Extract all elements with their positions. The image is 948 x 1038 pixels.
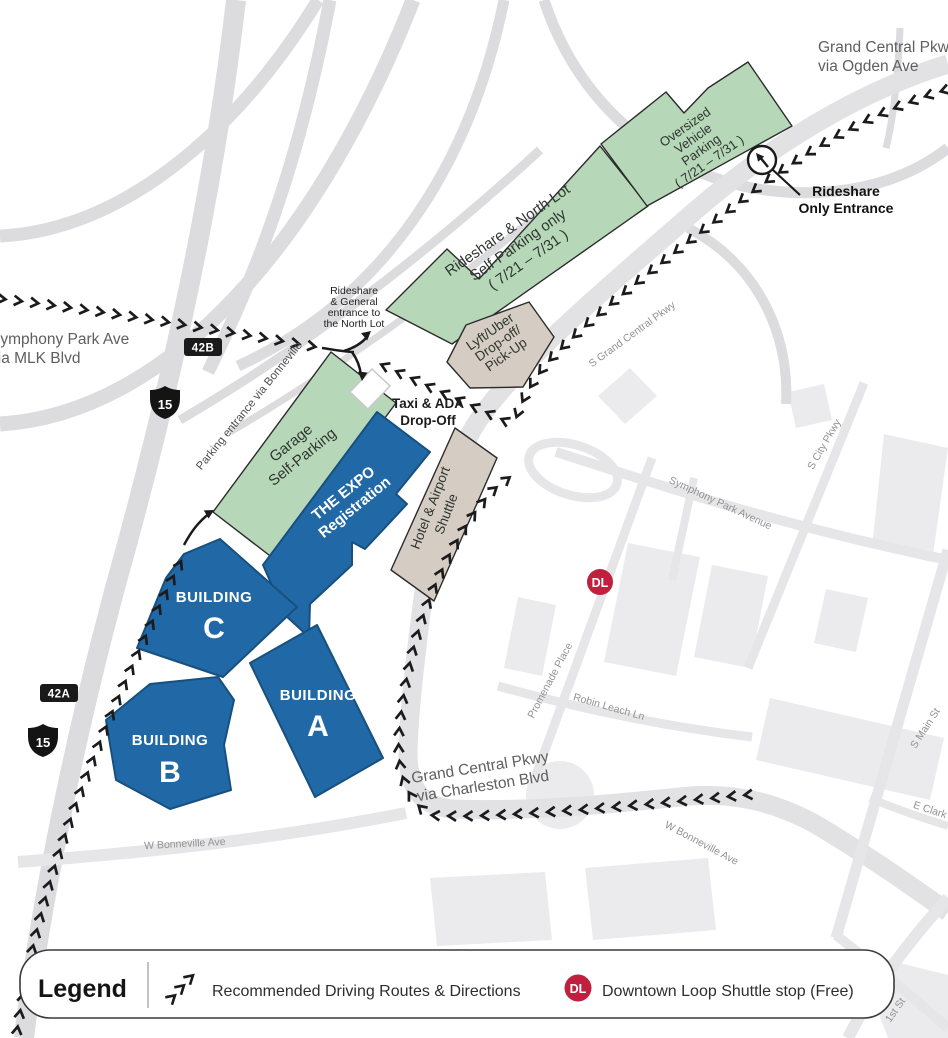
svg-text:Grand Central Pkwy: Grand Central Pkwy: [818, 39, 948, 56]
venue-driving-map: DL 42B 15 42A 15 Rideshare & North Lot S…: [0, 0, 948, 1038]
svg-text:C: C: [203, 612, 225, 645]
svg-text:Taxi & ADA: Taxi & ADA: [392, 396, 464, 411]
svg-text:42A: 42A: [48, 689, 71, 701]
callout-rideshare-only-entrance: Rideshare Only Entrance: [799, 183, 894, 216]
route-label-mlk: Symphony Park Ave via MLK Blvd: [0, 331, 129, 367]
svg-text:the North Lot: the North Lot: [324, 318, 385, 330]
svg-text:Symphony Park Ave: Symphony Park Ave: [0, 331, 129, 348]
legend-title: Legend: [38, 975, 127, 1003]
exit-42a-badge: 42A: [40, 684, 78, 702]
svg-text:BUILDING: BUILDING: [280, 687, 357, 704]
svg-text:via Ogden Ave: via Ogden Ave: [818, 58, 919, 75]
svg-text:A: A: [307, 710, 329, 743]
callout-north-entrance: Rideshare & General entrance to the Nort…: [324, 285, 385, 330]
svg-text:Rideshare: Rideshare: [812, 183, 880, 199]
svg-text:42B: 42B: [192, 343, 215, 355]
legend-route-item: Recommended Driving Routes & Directions: [212, 983, 521, 1000]
garage-entrance-arrow: [184, 513, 210, 545]
legend-dl-item: Downtown Loop Shuttle stop (Free): [602, 983, 854, 1000]
exit-42b-badge: 42B: [184, 338, 222, 356]
dl-shuttle-stop-badge: DL: [587, 569, 613, 595]
svg-text:via MLK Blvd: via MLK Blvd: [0, 350, 80, 367]
svg-text:Drop-Off: Drop-Off: [400, 413, 456, 428]
svg-text:DL: DL: [570, 982, 587, 996]
city-blocks: [430, 368, 948, 1038]
svg-text:B: B: [159, 756, 181, 789]
svg-text:15: 15: [158, 397, 172, 412]
svg-text:Only Entrance: Only Entrance: [799, 200, 894, 216]
street-bonneville-left: W Bonneville Ave: [144, 836, 226, 852]
legend: Legend Recommended Driving Routes & Dire…: [20, 950, 894, 1018]
svg-text:15: 15: [36, 735, 50, 750]
callout-taxi-ada: Taxi & ADA Drop-Off: [392, 396, 464, 428]
i15-shield-south: 15: [28, 724, 58, 757]
dl-badge-label: DL: [592, 576, 609, 590]
svg-text:BUILDING: BUILDING: [132, 732, 209, 749]
svg-text:BUILDING: BUILDING: [176, 589, 253, 606]
